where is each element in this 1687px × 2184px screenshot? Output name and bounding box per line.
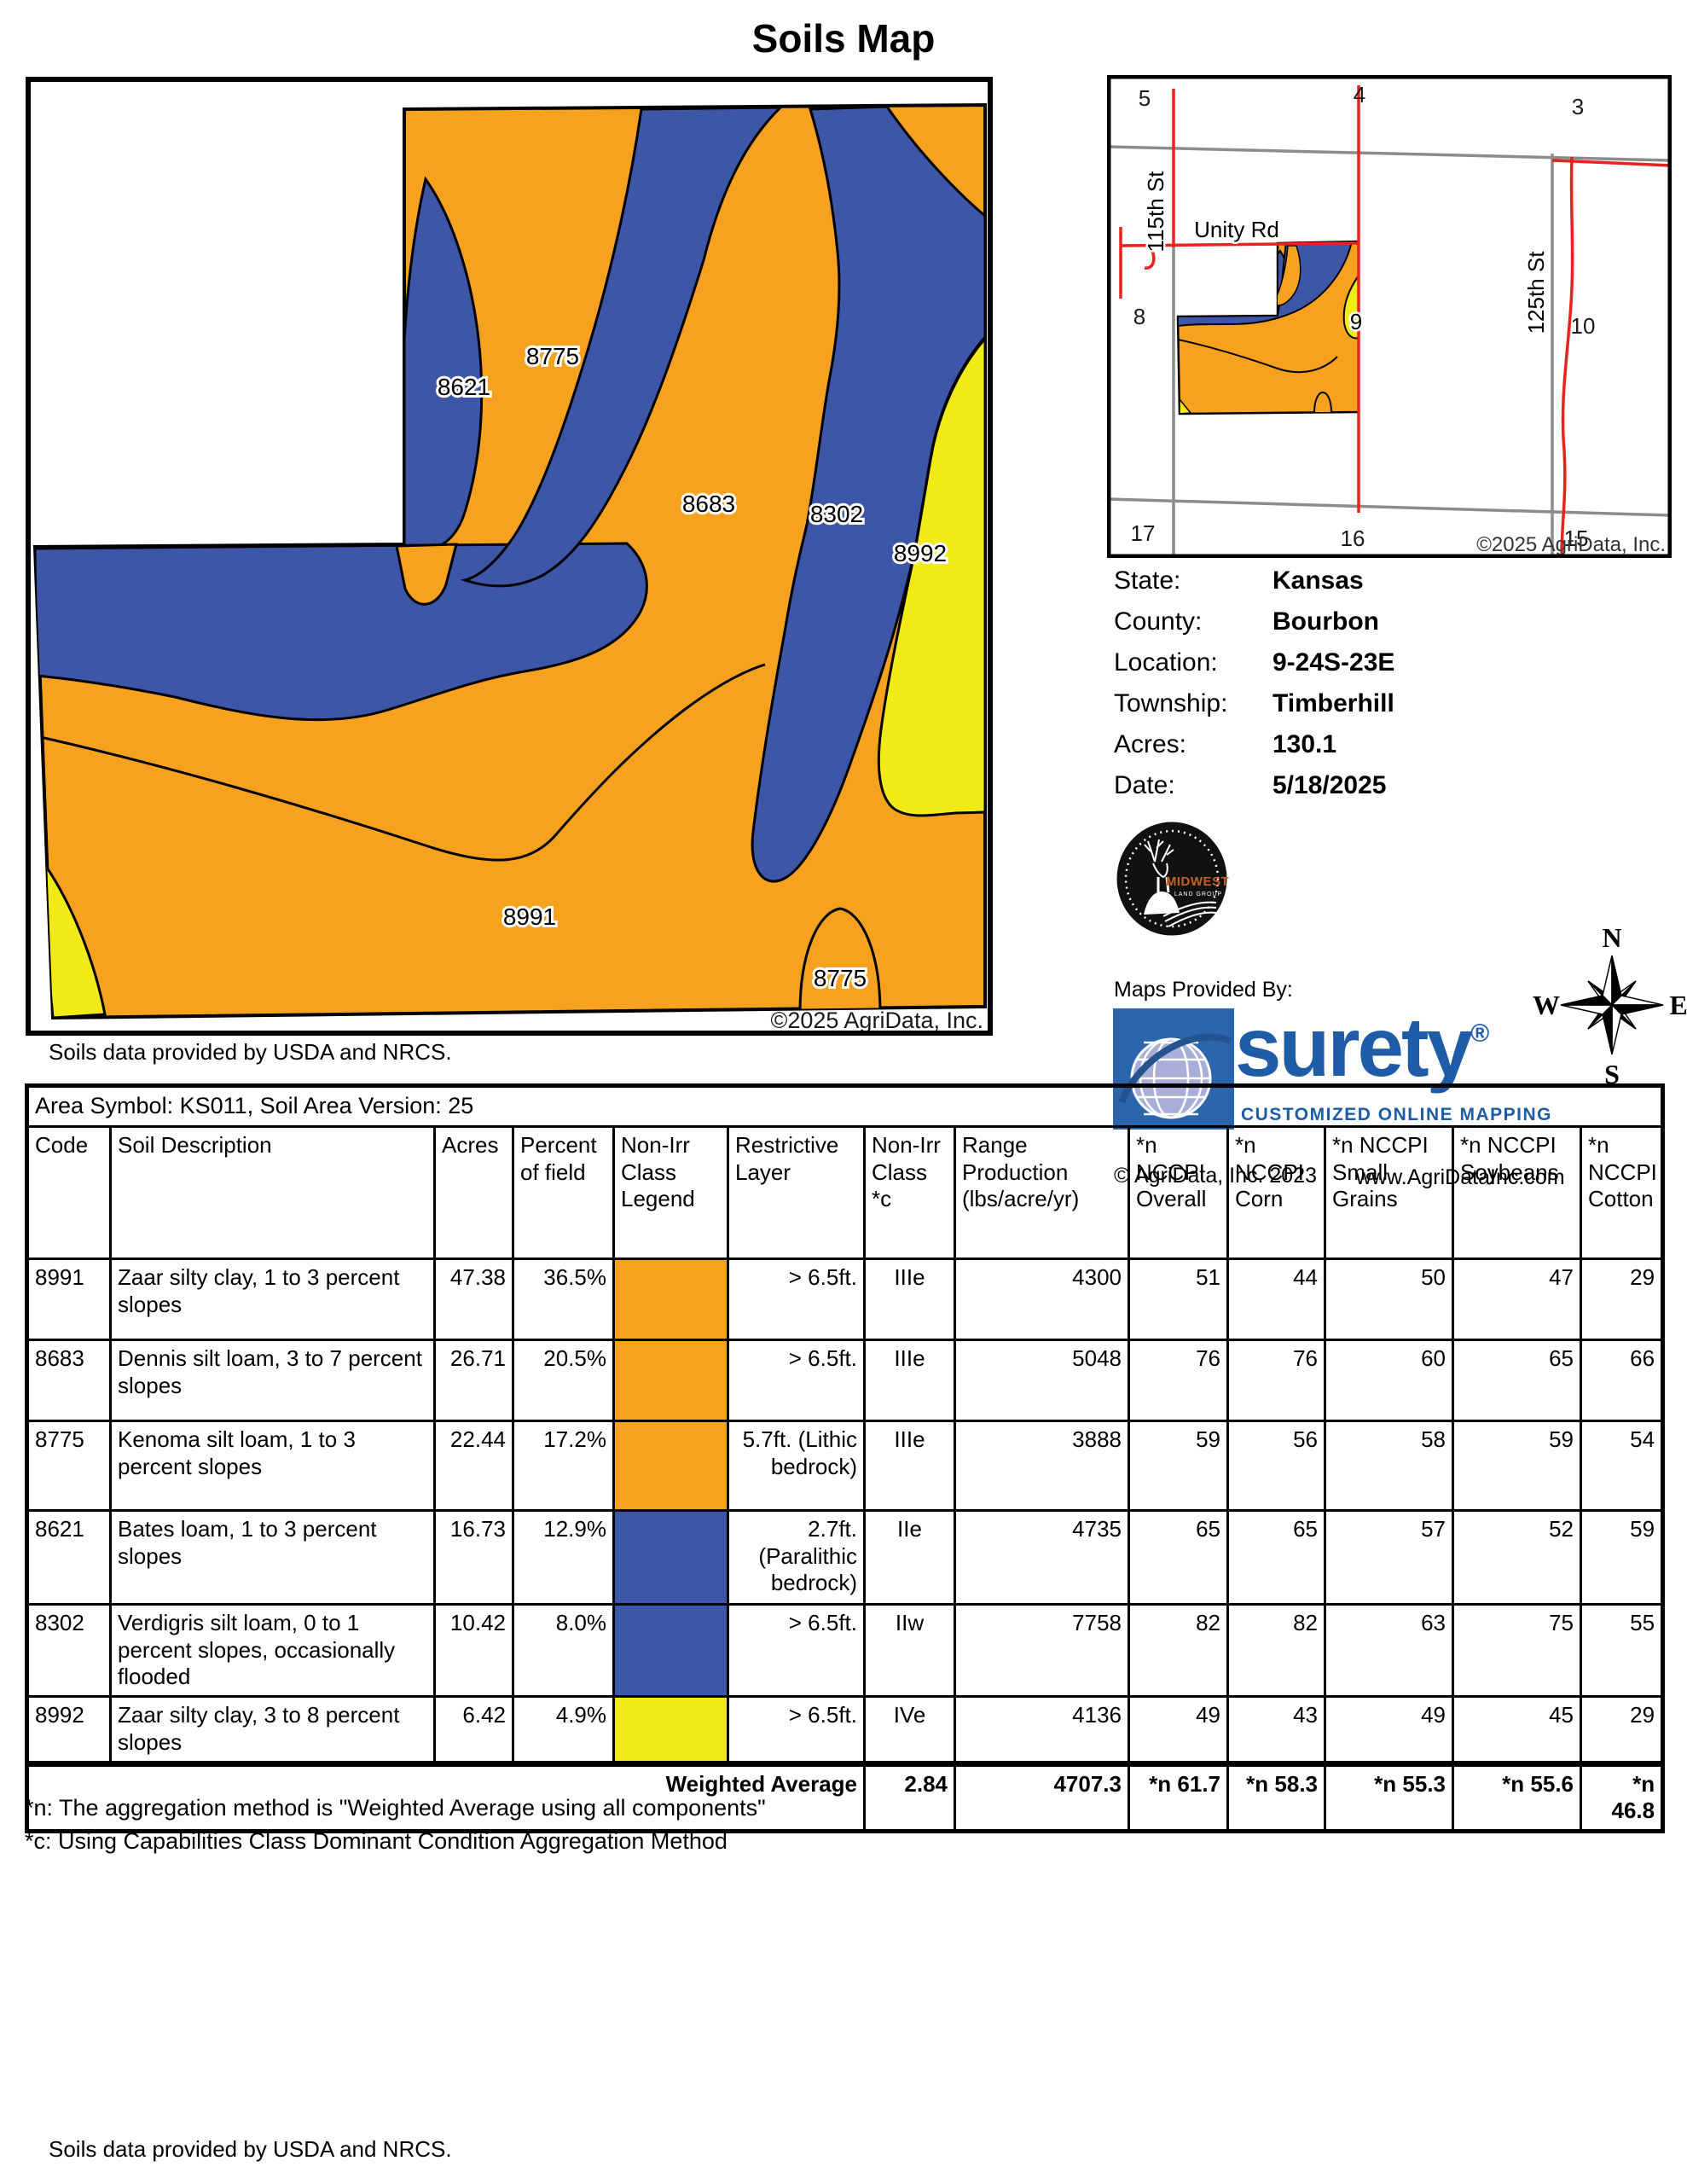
soil-label: 8992	[894, 540, 947, 566]
section-number: 4	[1354, 82, 1365, 107]
col-header-percent: Percent of field	[513, 1127, 614, 1259]
cell-code: 8992	[27, 1697, 111, 1763]
cell-legend-swatch	[614, 1421, 728, 1511]
cell-nccpi-soybeans: 75	[1453, 1605, 1581, 1697]
cell-nccpi-small-grains: 57	[1325, 1511, 1453, 1605]
section-number: 3	[1572, 94, 1584, 119]
table-row: 8991Zaar silty clay, 1 to 3 percent slop…	[27, 1259, 1663, 1340]
info-label: Location:	[1114, 648, 1272, 677]
info-label: Date:	[1114, 771, 1272, 800]
cell-code: 8683	[27, 1340, 111, 1421]
cell-description: Dennis silt loam, 3 to 7 percent slopes	[111, 1340, 435, 1421]
col-header-nccpi-overall: *n NCCPI Overall	[1129, 1127, 1228, 1259]
cell-description: Kenoma silt loam, 1 to 3 percent slopes	[111, 1421, 435, 1511]
col-header-code: Code	[27, 1127, 111, 1259]
table-row: 8683Dennis silt loam, 3 to 7 percent slo…	[27, 1340, 1663, 1421]
info-label: Township:	[1114, 689, 1272, 718]
cell-nccpi-small-grains: 60	[1325, 1340, 1453, 1421]
weighted-small-grains: *n 55.3	[1325, 1763, 1453, 1831]
cell-legend-swatch	[614, 1259, 728, 1340]
compass-n-label: N	[1602, 922, 1621, 953]
page-title: Soils Map	[0, 15, 1687, 61]
cell-nccpi-cotton: 29	[1581, 1697, 1663, 1763]
cell-nccpi-cotton: 59	[1581, 1511, 1663, 1605]
cell-code: 8775	[27, 1421, 111, 1511]
col-header-nccpi-small-grains: *n NCCPI Small Grains	[1325, 1127, 1453, 1259]
cell-range-production: 4735	[955, 1511, 1129, 1605]
midwest-logo-sub: LAND GROUP	[1174, 892, 1222, 897]
map-caption: Soils data provided by USDA and NRCS.	[49, 1039, 452, 1066]
compass-w-label: W	[1533, 990, 1560, 1020]
cell-nccpi-corn: 82	[1228, 1605, 1325, 1697]
compass-e-label: E	[1669, 990, 1687, 1020]
cell-acres: 22.44	[435, 1421, 513, 1511]
weighted-soybeans: *n 55.6	[1453, 1763, 1581, 1831]
cell-nccpi-soybeans: 59	[1453, 1421, 1581, 1511]
info-label: County:	[1114, 607, 1272, 636]
weighted-overall: *n 61.7	[1129, 1763, 1228, 1831]
table-row: 8992Zaar silty clay, 3 to 8 percent slop…	[27, 1697, 1663, 1763]
info-value: Timberhill	[1272, 689, 1394, 718]
compass-star	[1561, 955, 1663, 1054]
col-header-nccpi-cotton: *n NCCPI Cotton	[1581, 1127, 1663, 1259]
cell-range-production: 3888	[955, 1421, 1129, 1511]
midwest-logo-name: MIDWEST	[1166, 874, 1229, 889]
cell-code: 8302	[27, 1605, 111, 1697]
section-number: 5	[1139, 85, 1151, 111]
cell-percent: 12.9%	[513, 1511, 614, 1605]
cell-nccpi-soybeans: 65	[1453, 1340, 1581, 1421]
info-label: State:	[1114, 566, 1272, 595]
cell-range-production: 7758	[955, 1605, 1129, 1697]
table-row: 8302Verdigris silt loam, 0 to 1 percent …	[27, 1605, 1663, 1697]
cell-restrictive-layer: > 6.5ft.	[728, 1259, 865, 1340]
cell-nccpi-soybeans: 52	[1453, 1511, 1581, 1605]
cell-nccpi-soybeans: 47	[1453, 1259, 1581, 1340]
cell-nccpi-corn: 43	[1228, 1697, 1325, 1763]
cell-nccpi-small-grains: 63	[1325, 1605, 1453, 1697]
cell-acres: 6.42	[435, 1697, 513, 1763]
cell-non-irr-class: IIw	[865, 1605, 955, 1697]
cell-nccpi-small-grains: 58	[1325, 1421, 1453, 1511]
locator-map: 115th St 125th St Unity Rd 5 4 3 8 9 10 …	[1107, 75, 1672, 558]
maps-provided-by-label: Maps Provided By:	[1114, 978, 1293, 1002]
cell-restrictive-layer: 2.7ft. (Paralithic bedrock)	[728, 1511, 865, 1605]
cell-acres: 47.38	[435, 1259, 513, 1340]
cell-nccpi-small-grains: 49	[1325, 1697, 1453, 1763]
cell-percent: 36.5%	[513, 1259, 614, 1340]
cell-nccpi-cotton: 55	[1581, 1605, 1663, 1697]
section-number: 10	[1571, 313, 1596, 339]
cell-nccpi-cotton: 29	[1581, 1259, 1663, 1340]
section-number: 9	[1350, 309, 1362, 334]
cell-description: Bates loam, 1 to 3 percent slopes	[111, 1511, 435, 1605]
locator-copyright: ©2025 AgriData, Inc.	[1476, 533, 1666, 556]
col-header-acres: Acres	[435, 1127, 513, 1259]
cell-nccpi-overall: 82	[1129, 1605, 1228, 1697]
cell-acres: 10.42	[435, 1605, 513, 1697]
col-header-class: Non-Irr Class *c	[865, 1127, 955, 1259]
soil-label: 8775	[814, 965, 867, 991]
cell-non-irr-class: IVe	[865, 1697, 955, 1763]
col-header-range-production: Range Production (lbs/acre/yr)	[955, 1127, 1129, 1259]
cell-nccpi-overall: 65	[1129, 1511, 1228, 1605]
cell-non-irr-class: IIIe	[865, 1259, 955, 1340]
cell-nccpi-corn: 76	[1228, 1340, 1325, 1421]
cell-restrictive-layer: 5.7ft. (Lithic bedrock)	[728, 1421, 865, 1511]
footnotes: *n: The aggregation method is "Weighted …	[25, 1792, 766, 1858]
soil-label: 8302	[810, 501, 863, 527]
cell-description: Verdigris silt loam, 0 to 1 percent slop…	[111, 1605, 435, 1697]
cell-percent: 17.2%	[513, 1421, 614, 1511]
info-value: Bourbon	[1272, 607, 1379, 636]
table-row: 8775Kenoma silt loam, 1 to 3 percent slo…	[27, 1421, 1663, 1511]
cell-nccpi-cotton: 66	[1581, 1340, 1663, 1421]
cell-nccpi-overall: 76	[1129, 1340, 1228, 1421]
cell-nccpi-cotton: 54	[1581, 1421, 1663, 1511]
weighted-corn: *n 58.3	[1228, 1763, 1325, 1831]
cell-restrictive-layer: > 6.5ft.	[728, 1340, 865, 1421]
road-label-unity: Unity Rd	[1194, 217, 1279, 242]
cell-restrictive-layer: > 6.5ft.	[728, 1697, 865, 1763]
soils-map: 8775 8621 8683 8302 8992 8991 8775 ©2025…	[26, 77, 993, 1036]
cell-non-irr-class: IIIe	[865, 1421, 955, 1511]
cell-nccpi-corn: 65	[1228, 1511, 1325, 1605]
surety-wordmark: surety®	[1235, 1005, 1489, 1089]
road-label-125th: 125th St	[1523, 251, 1549, 334]
soil-label: 8683	[682, 491, 735, 517]
surety-word-text: surety	[1235, 1000, 1470, 1094]
cell-nccpi-corn: 44	[1228, 1259, 1325, 1340]
cell-acres: 16.73	[435, 1511, 513, 1605]
info-value: Kansas	[1272, 566, 1364, 595]
soil-label: 8991	[503, 903, 556, 930]
registered-mark: ®	[1470, 1019, 1489, 1048]
info-value: 9-24S-23E	[1272, 648, 1394, 677]
table-header-row: Code Soil Description Acres Percent of f…	[27, 1127, 1663, 1259]
soil-label: 8775	[526, 343, 579, 369]
cell-nccpi-corn: 56	[1228, 1421, 1325, 1511]
cell-restrictive-layer: > 6.5ft.	[728, 1605, 865, 1697]
section-number: 8	[1133, 304, 1145, 329]
col-header-nccpi-soybeans: *n NCCPI Soybeans	[1453, 1127, 1581, 1259]
table-row: 8621Bates loam, 1 to 3 percent slopes16.…	[27, 1511, 1663, 1605]
info-value: 130.1	[1272, 730, 1336, 759]
midwest-land-group-logo: MIDWEST LAND GROUP	[1110, 821, 1235, 940]
cell-nccpi-overall: 51	[1129, 1259, 1228, 1340]
cell-range-production: 4136	[955, 1697, 1129, 1763]
area-symbol-text: Area Symbol: KS011, Soil Area Version: 2…	[27, 1086, 1663, 1127]
footnote-c: *c: Using Capabilities Class Dominant Co…	[25, 1825, 766, 1858]
map-copyright: ©2025 AgriData, Inc.	[770, 1008, 983, 1033]
soil-label: 8621	[438, 374, 490, 400]
info-value: 5/18/2025	[1272, 771, 1386, 800]
cell-acres: 26.71	[435, 1340, 513, 1421]
cell-legend-swatch	[614, 1605, 728, 1697]
compass-rose-icon: N E S W	[1531, 921, 1687, 1088]
cell-non-irr-class: IIe	[865, 1511, 955, 1605]
col-header-legend: Non-Irr Class Legend	[614, 1127, 728, 1259]
cell-range-production: 5048	[955, 1340, 1129, 1421]
cell-description: Zaar silty clay, 3 to 8 percent slopes	[111, 1697, 435, 1763]
col-header-restrictive: Restrictive Layer	[728, 1127, 865, 1259]
section-number: 17	[1131, 520, 1156, 546]
cell-nccpi-overall: 49	[1129, 1697, 1228, 1763]
weighted-range-production: 4707.3	[955, 1763, 1129, 1831]
cell-description: Zaar silty clay, 1 to 3 percent slopes	[111, 1259, 435, 1340]
cell-legend-swatch	[614, 1511, 728, 1605]
cell-legend-swatch	[614, 1340, 728, 1421]
cell-non-irr-class: IIIe	[865, 1340, 955, 1421]
cell-code: 8621	[27, 1511, 111, 1605]
parcel-info: State:Kansas County:Bourbon Location:9-2…	[1114, 566, 1660, 812]
page-footer: Soils data provided by USDA and NRCS.	[49, 2136, 452, 2163]
cell-nccpi-small-grains: 50	[1325, 1259, 1453, 1340]
footnote-n: *n: The aggregation method is "Weighted …	[25, 1792, 766, 1825]
col-header-nccpi-corn: *n NCCPI Corn	[1228, 1127, 1325, 1259]
info-label: Acres:	[1114, 730, 1272, 759]
soils-table: Area Symbol: KS011, Soil Area Version: 2…	[25, 1083, 1665, 1833]
weighted-cotton: *n 46.8	[1581, 1763, 1663, 1831]
cell-code: 8991	[27, 1259, 111, 1340]
cell-nccpi-overall: 59	[1129, 1421, 1228, 1511]
section-number: 16	[1341, 526, 1365, 551]
cell-nccpi-soybeans: 45	[1453, 1697, 1581, 1763]
cell-range-production: 4300	[955, 1259, 1129, 1340]
area-symbol-row: Area Symbol: KS011, Soil Area Version: 2…	[27, 1086, 1663, 1127]
road-label-115th: 115th St	[1143, 171, 1168, 253]
cell-legend-swatch	[614, 1697, 728, 1763]
cell-percent: 20.5%	[513, 1340, 614, 1421]
weighted-class: 2.84	[865, 1763, 955, 1831]
cell-percent: 4.9%	[513, 1697, 614, 1763]
cell-percent: 8.0%	[513, 1605, 614, 1697]
col-header-description: Soil Description	[111, 1127, 435, 1259]
